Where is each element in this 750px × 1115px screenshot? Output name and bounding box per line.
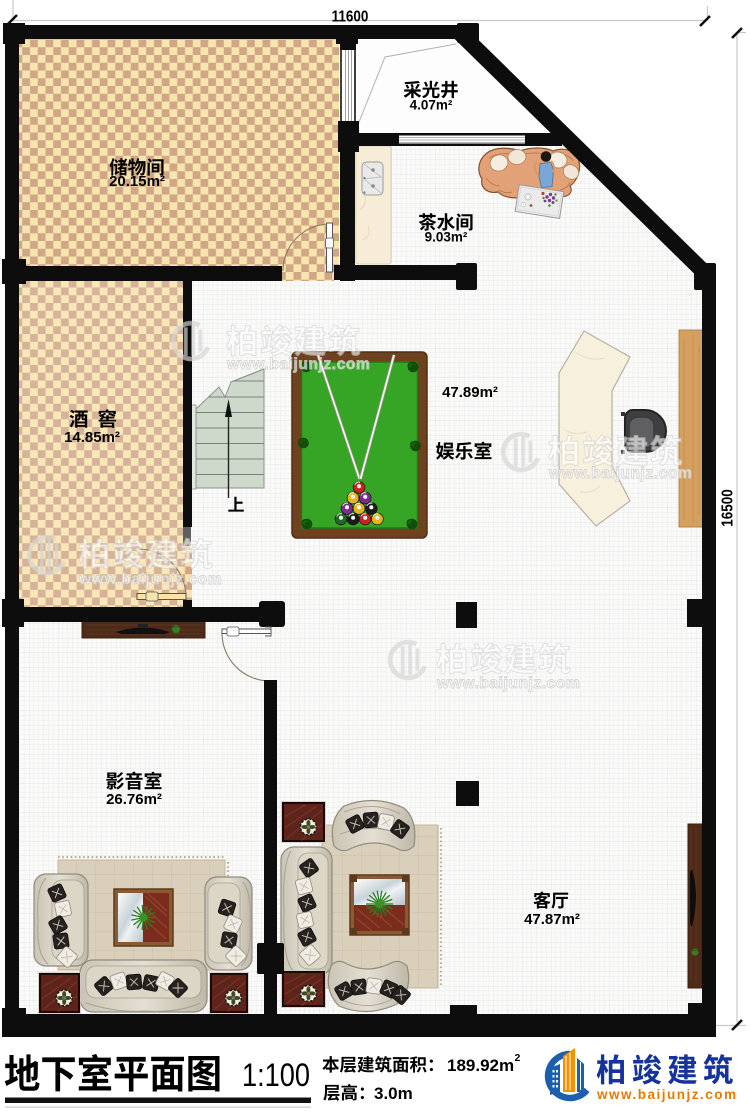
svg-text:1:100: 1:100 [242,1058,310,1094]
svg-text:47.89m²: 47.89m² [442,384,498,401]
svg-text:20.15m²: 20.15m² [109,173,165,190]
svg-text:4.07m²: 4.07m² [410,98,453,113]
svg-text:www.baijunjz.com: www.baijunjz.com [548,465,692,482]
svg-text:www.baijunjz.com: www.baijunjz.com [436,675,580,692]
svg-text:www.baijunjz.com: www.baijunjz.com [78,571,222,588]
svg-text:www.baijunjz.com: www.baijunjz.com [226,356,370,373]
svg-text:189.92m: 189.92m [447,1056,514,1075]
svg-text:www.baijunjz.com: www.baijunjz.com [596,1087,738,1102]
svg-text:47.87m²: 47.87m² [524,911,580,928]
svg-text:11600: 11600 [332,9,369,26]
svg-text:14.85m²: 14.85m² [64,429,120,446]
svg-text:16500: 16500 [720,489,737,526]
svg-text:2: 2 [515,1052,521,1064]
svg-text:26.76m²: 26.76m² [106,791,162,808]
svg-text:3.0m: 3.0m [374,1084,413,1103]
svg-text:9.03m²: 9.03m² [425,230,468,245]
